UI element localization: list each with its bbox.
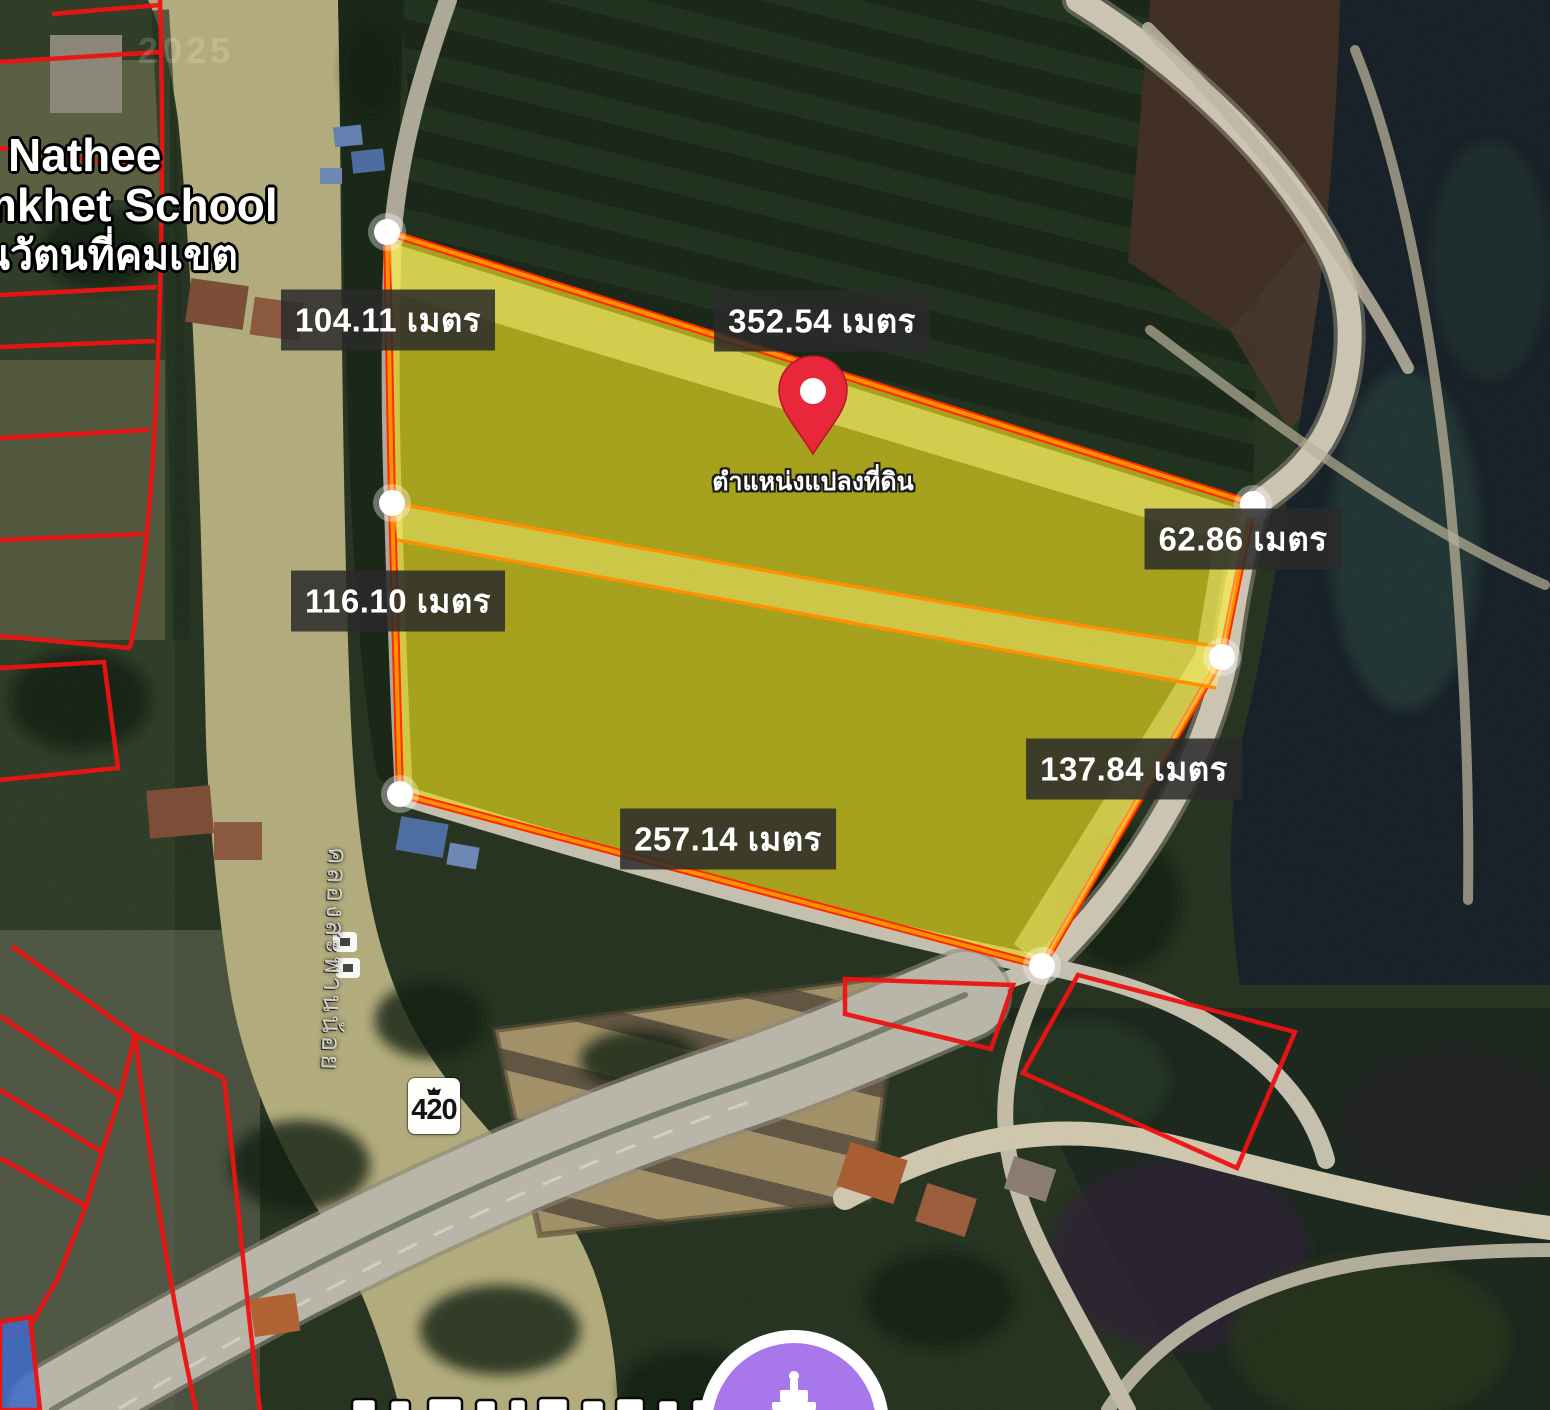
vertex-dot: [1023, 947, 1061, 985]
vertex-dot: [373, 484, 411, 522]
vertex-dot: [368, 213, 406, 251]
vertex-dot: [1203, 638, 1241, 676]
map-artwork: [0, 0, 1550, 1410]
satellite-map-canvas[interactable]: 2025 Nathee mkhet School นวัตนที่คมเขต ค…: [0, 0, 1550, 1410]
vertex-dot: [381, 775, 419, 813]
vertex-dot: [1234, 485, 1272, 523]
